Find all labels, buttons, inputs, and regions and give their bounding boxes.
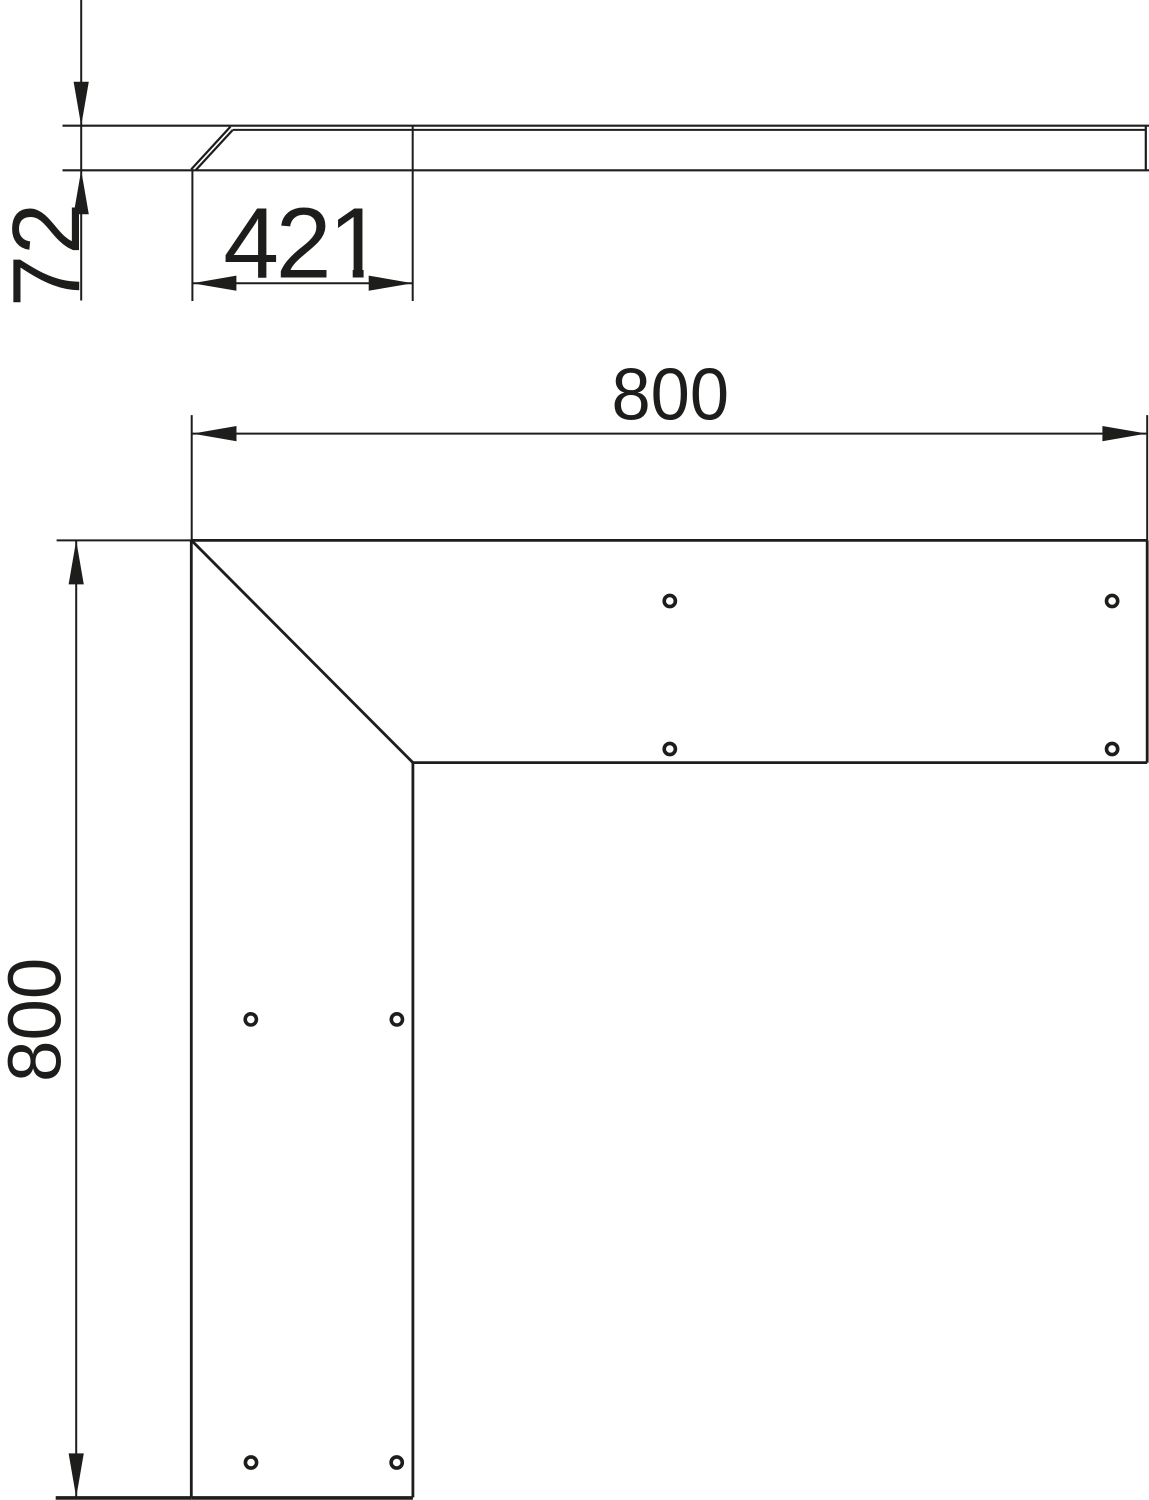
svg-text:800: 800 [612,354,730,436]
svg-text:72: 72 [0,203,100,307]
svg-text:800: 800 [0,958,77,1082]
